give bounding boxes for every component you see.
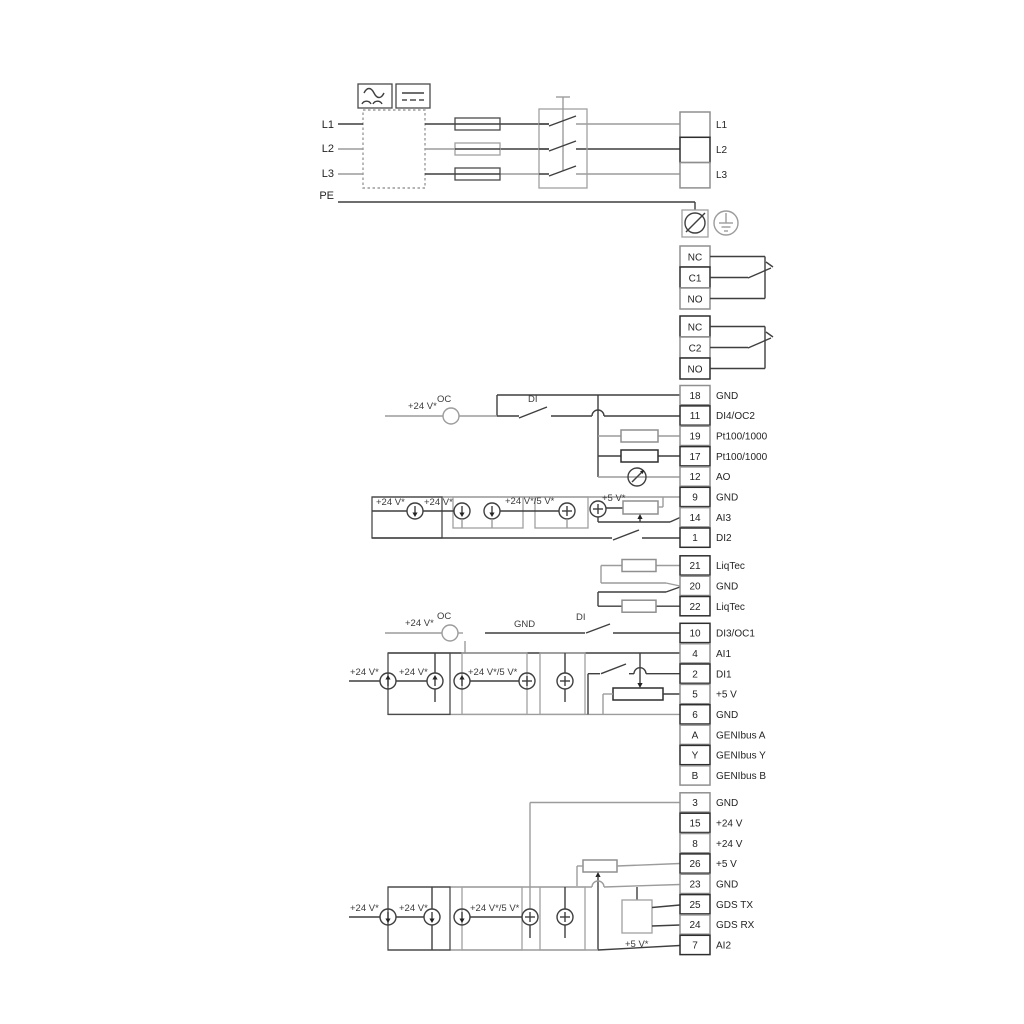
svg-text:AI1: AI1 (716, 649, 731, 660)
mains-label-l2: L2 (322, 143, 334, 155)
pe-terminal (682, 210, 708, 237)
svg-text:20: 20 (689, 582, 701, 593)
relay1-nc-label: NC (688, 253, 702, 264)
relay2-nc-label: NC (688, 323, 702, 334)
terminal-strip-d: 3 15 8 26 23 25 24 7 GND +24 V +24 V +5 … (680, 793, 755, 955)
svg-text:+24 V: +24 V (716, 839, 743, 850)
p24-label-di3: +24 V* (405, 618, 434, 629)
svg-text:+24 V*: +24 V* (376, 497, 405, 508)
oc-label-di3: OC (437, 611, 451, 622)
svg-text:23: 23 (689, 880, 701, 891)
strip-a-wiring: +24 V* OC DI +24 V* (372, 394, 680, 540)
liqtec-wiring (598, 560, 680, 613)
svg-text:AI2: AI2 (716, 941, 731, 952)
svg-text:12: 12 (689, 472, 701, 483)
svg-text:B: B (692, 771, 699, 782)
mains-section: L1 L2 L3 PE (319, 84, 738, 237)
ac-symbol-icon (358, 84, 392, 108)
svg-text:+24 V*: +24 V* (424, 497, 453, 508)
mains-label-pe: PE (319, 190, 334, 202)
svg-text:GND: GND (716, 880, 738, 891)
mains-wires (338, 124, 695, 210)
svg-text:Pt100/1000: Pt100/1000 (716, 452, 768, 463)
svg-text:+24 V*/5 V*: +24 V*/5 V* (468, 667, 518, 678)
open-collector-icon (443, 408, 459, 424)
rfi-filter-box (363, 110, 425, 188)
svg-text:GDS TX: GDS TX (716, 900, 753, 911)
mains-label-l3: L3 (322, 168, 334, 180)
svg-text:+24 V*: +24 V* (350, 667, 379, 678)
svg-text:+24 V*: +24 V* (399, 667, 428, 678)
earth-icon (714, 211, 738, 235)
terminal-strip-b: 21 20 22 LiqTec GND LiqTec (680, 556, 745, 616)
pt100-resistor-1 (621, 430, 658, 442)
voltage-source-icon (559, 503, 575, 528)
p24-label-di4: +24 V* (408, 401, 437, 412)
relay2-no-label: NO (688, 365, 703, 376)
svg-text:3: 3 (692, 798, 698, 809)
svg-text:A: A (692, 730, 699, 741)
svg-text:+5 V*: +5 V* (602, 493, 626, 504)
svg-text:+24 V: +24 V (716, 819, 743, 830)
current-source-icon (454, 503, 470, 528)
di4-switch (519, 407, 547, 418)
terminal-label-l1: L1 (716, 120, 728, 131)
current-source-icon (424, 887, 440, 950)
svg-text:GENIbus Y: GENIbus Y (716, 751, 766, 762)
svg-text:6: 6 (692, 710, 698, 721)
svg-text:Y: Y (692, 751, 699, 762)
relay1-block: NC C1 NO (680, 246, 773, 309)
svg-text:10: 10 (689, 629, 701, 640)
strip-c-wiring: +24 V* OC GND DI +24 V* +24 V* (349, 611, 680, 714)
current-source-icon (407, 503, 423, 519)
svg-text:AI3: AI3 (716, 513, 731, 524)
oc-label-di4: OC (437, 394, 451, 405)
potentiometer (613, 688, 663, 700)
relay1-contact (710, 257, 773, 299)
liqtec-resistor-1 (622, 560, 656, 572)
svg-text:GND: GND (716, 582, 738, 593)
svg-text:LiqTec: LiqTec (716, 561, 745, 572)
svg-text:+24 V*/5 V*: +24 V*/5 V* (505, 496, 555, 507)
svg-text:7: 7 (692, 941, 698, 952)
terminal-strip-c: 10 4 2 5 6 A Y B DI3/OC1 AI1 DI1 +5 V GN… (680, 623, 766, 785)
svg-text:+24 V*/5 V*: +24 V*/5 V* (470, 903, 520, 914)
wiring-diagram-canvas: L1 L2 L3 PE (0, 0, 1024, 1024)
svg-text:GND: GND (716, 391, 738, 402)
svg-text:AO: AO (716, 472, 731, 483)
svg-text:17: 17 (689, 452, 701, 463)
voltage-source-icon (522, 909, 538, 938)
open-collector-icon (442, 625, 458, 641)
svg-text:9: 9 (692, 493, 698, 504)
relay1-c-label: C1 (689, 274, 702, 285)
mains-terminal-block (680, 112, 710, 188)
svg-text:GDS RX: GDS RX (716, 920, 755, 931)
svg-text:22: 22 (689, 602, 701, 613)
strip-d-wiring: +5 V* +24 V* +24 V* (349, 803, 680, 951)
ai1-sensor-options: +24 V* +24 V* +24 V*/5 V* (349, 653, 680, 714)
terminal-label-l3: L3 (716, 170, 728, 181)
voltage-source-icon (557, 653, 573, 702)
voltage-source-icon (590, 501, 606, 517)
di-label-di4: DI (528, 394, 538, 405)
relay1-no-label: NO (688, 295, 703, 306)
svg-text:18: 18 (689, 391, 701, 402)
svg-text:21: 21 (689, 561, 701, 572)
svg-text:DI2: DI2 (716, 533, 732, 544)
svg-text:+24 V*: +24 V* (399, 903, 428, 914)
svg-text:8: 8 (692, 839, 698, 850)
current-source-icon (484, 503, 500, 528)
svg-text:DI3/OC1: DI3/OC1 (716, 629, 755, 640)
terminal-label-l2: L2 (716, 145, 728, 156)
svg-text:GENIbus A: GENIbus A (716, 730, 766, 741)
svg-text:14: 14 (689, 513, 701, 524)
voltage-source-icon (557, 887, 573, 938)
di3-switch (586, 624, 610, 633)
svg-text:GENIbus B: GENIbus B (716, 771, 766, 782)
terminal-strip-a: 18 11 19 17 12 9 14 1 GND DI4/OC2 Pt100/… (680, 386, 768, 548)
svg-text:GND: GND (716, 798, 738, 809)
svg-text:Pt100/1000: Pt100/1000 (716, 432, 768, 443)
svg-text:24: 24 (689, 920, 701, 931)
pt100-resistor-2 (621, 450, 658, 462)
svg-text:5: 5 (692, 690, 698, 701)
potentiometer (623, 501, 658, 514)
di-label-di3: DI (576, 612, 586, 623)
svg-text:19: 19 (689, 432, 701, 443)
svg-text:GND: GND (716, 493, 738, 504)
svg-text:DI1: DI1 (716, 669, 732, 680)
di1-switch (601, 664, 626, 674)
svg-text:2: 2 (692, 669, 698, 680)
mains-label-l1: L1 (322, 119, 334, 131)
svg-text:4: 4 (692, 649, 698, 660)
svg-text:26: 26 (689, 859, 701, 870)
relay2-contact (710, 327, 773, 369)
relay2-block: NC C2 NO (680, 316, 773, 379)
wiring-diagram: L1 L2 L3 PE (0, 0, 1024, 1024)
svg-text:LiqTec: LiqTec (716, 602, 745, 613)
svg-text:1: 1 (692, 533, 698, 544)
svg-text:DI4/OC2: DI4/OC2 (716, 411, 755, 422)
ai3-sensor-options: +24 V* +24 V* +24 V*/5 V* (372, 493, 680, 540)
current-source-icon (427, 653, 443, 702)
svg-text:11: 11 (690, 411, 701, 422)
potentiometer (583, 860, 617, 872)
svg-text:+5 V: +5 V (716, 859, 737, 870)
dc-symbol-icon (396, 84, 430, 108)
di2-switch (613, 530, 639, 540)
relay2-c-label: C2 (689, 344, 702, 355)
liqtec-resistor-2 (622, 600, 656, 612)
svg-text:+5 V: +5 V (716, 690, 737, 701)
svg-text:25: 25 (689, 900, 701, 911)
svg-text:GND: GND (716, 710, 738, 721)
svg-text:+24 V*: +24 V* (350, 903, 379, 914)
gds-sensor-box: +5 V* (622, 887, 680, 950)
svg-text:15: 15 (689, 819, 701, 830)
gnd-label-di3: GND (514, 619, 535, 630)
